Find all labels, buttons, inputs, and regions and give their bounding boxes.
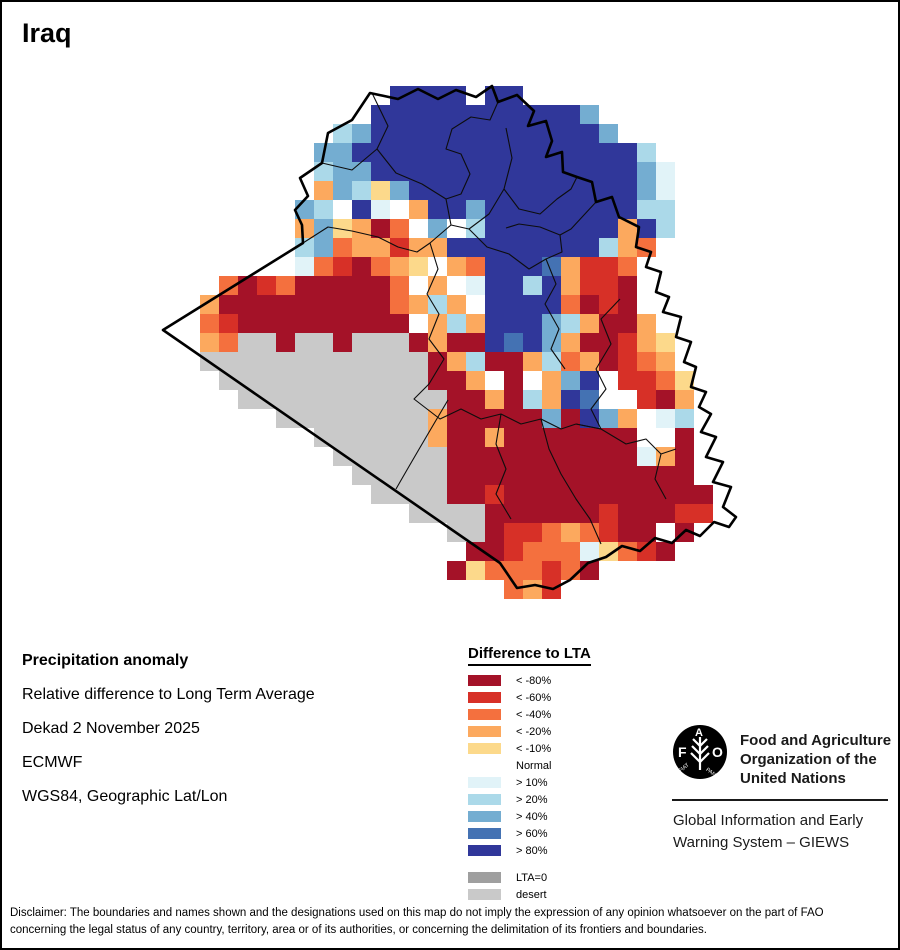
grid-cell [561, 409, 580, 428]
grid-cell [333, 181, 352, 200]
legend-swatch [468, 811, 501, 822]
grid-cell [447, 409, 466, 428]
grid-cell [314, 295, 333, 314]
fao-letter-o: O [712, 744, 723, 760]
grid-cell [485, 200, 504, 219]
grid-cell [428, 124, 447, 143]
grid-cell [352, 371, 371, 390]
grid-cell [637, 181, 656, 200]
grid-cell [314, 238, 333, 257]
grid-cell [466, 352, 485, 371]
grid-cell [637, 428, 656, 447]
grid-cell [656, 333, 675, 352]
grid-cell [637, 352, 656, 371]
grid-cell [580, 466, 599, 485]
grid-cell [694, 485, 713, 504]
grid-cell [580, 485, 599, 504]
grid-cell [276, 276, 295, 295]
legend-item: < -10% [468, 740, 638, 757]
legend-swatch [468, 709, 501, 720]
grid-cell [504, 105, 523, 124]
grid-cell [390, 162, 409, 181]
legend-label: > 80% [516, 845, 548, 857]
legend-item: > 40% [468, 808, 638, 825]
grid-cell [447, 276, 466, 295]
grid-cell [675, 466, 694, 485]
grid-cell [637, 466, 656, 485]
grid-cell [447, 466, 466, 485]
grid-cell [523, 428, 542, 447]
grid-cell [466, 390, 485, 409]
grid-cell [409, 409, 428, 428]
grid-cell [409, 390, 428, 409]
grid-cell [257, 295, 276, 314]
grid-cell [504, 276, 523, 295]
grid-cell [352, 276, 371, 295]
grid-cell [371, 409, 390, 428]
grid-cell [504, 181, 523, 200]
grid-cell [409, 352, 428, 371]
grid-cell [618, 409, 637, 428]
grid-cell [618, 523, 637, 542]
info-relative-difference: Relative difference to Long Term Average [22, 686, 315, 704]
grid-cell [409, 333, 428, 352]
grid-cell [314, 257, 333, 276]
grid-cell [295, 257, 314, 276]
grid-cell [523, 181, 542, 200]
grid-cell [466, 466, 485, 485]
grid-cell [333, 333, 352, 352]
fao-letter-a: A [695, 727, 703, 739]
grid-cell [333, 276, 352, 295]
grid-cell [447, 105, 466, 124]
grid-cell [466, 447, 485, 466]
legend-items: < -80%< -60%< -40%< -20%< -10%Normal> 10… [468, 672, 638, 859]
grid-cell [561, 428, 580, 447]
grid-cell [561, 181, 580, 200]
grid-cell [523, 466, 542, 485]
grid-cell [504, 333, 523, 352]
grid-cell [390, 371, 409, 390]
grid-cell [295, 352, 314, 371]
grid-cell [390, 181, 409, 200]
grid-cell [333, 162, 352, 181]
grid-cell [409, 257, 428, 276]
grid-cell [447, 162, 466, 181]
grid-cell [314, 200, 333, 219]
grid-cell [523, 542, 542, 561]
grid-cell [390, 105, 409, 124]
legend-swatch [468, 828, 501, 839]
grid-cell [371, 295, 390, 314]
giews-line1: Global Information and Early [673, 810, 863, 832]
grid-cell [675, 504, 694, 523]
grid-cell [542, 352, 561, 371]
grid-cell [333, 200, 352, 219]
grid-cell [561, 390, 580, 409]
grid-cell [409, 276, 428, 295]
grid-cell [295, 219, 314, 238]
grid-cell [523, 276, 542, 295]
grid-cell [542, 390, 561, 409]
grid-cell [371, 276, 390, 295]
grid-cell [428, 485, 447, 504]
grid-cell [428, 105, 447, 124]
grid-cell [276, 295, 295, 314]
grid-cell [428, 181, 447, 200]
raster-grid [181, 86, 713, 599]
grid-cell [371, 314, 390, 333]
legend-item: LTA=0 [468, 869, 638, 886]
giews-text: Global Information and Early Warning Sys… [673, 810, 863, 854]
grid-cell [238, 295, 257, 314]
grid-cell [485, 371, 504, 390]
grid-cell [523, 504, 542, 523]
legend-item: > 10% [468, 774, 638, 791]
grid-cell [428, 447, 447, 466]
grid-cell [485, 485, 504, 504]
legend-swatch [468, 777, 501, 788]
legend-item: > 20% [468, 791, 638, 808]
grid-cell [485, 181, 504, 200]
grid-cell [219, 295, 238, 314]
grid-cell [352, 295, 371, 314]
grid-cell [580, 542, 599, 561]
grid-cell [352, 428, 371, 447]
grid-cell [333, 371, 352, 390]
grid-cell [409, 238, 428, 257]
grid-cell [447, 485, 466, 504]
legend-label: Normal [516, 760, 551, 772]
grid-cell [580, 333, 599, 352]
grid-cell [561, 561, 580, 580]
grid-cell [371, 105, 390, 124]
grid-cell [599, 124, 618, 143]
grid-cell [656, 504, 675, 523]
grid-cell [447, 447, 466, 466]
legend-item: > 60% [468, 825, 638, 842]
grid-cell [371, 352, 390, 371]
grid-cell [561, 257, 580, 276]
grid-cell [352, 257, 371, 276]
grid-cell [295, 409, 314, 428]
grid-cell [409, 219, 428, 238]
grid-cell [637, 390, 656, 409]
grid-cell [656, 409, 675, 428]
grid-cell [295, 276, 314, 295]
grid-cell [599, 314, 618, 333]
grid-cell [618, 371, 637, 390]
grid-cell [523, 162, 542, 181]
grid-cell [637, 200, 656, 219]
grid-cell [466, 428, 485, 447]
grid-cell [523, 295, 542, 314]
grid-cell [485, 314, 504, 333]
grid-cell [523, 390, 542, 409]
info-precipitation-anomaly: Precipitation anomaly [22, 652, 315, 670]
grid-cell [409, 143, 428, 162]
grid-cell [352, 143, 371, 162]
grid-cell [466, 371, 485, 390]
grid-cell [390, 333, 409, 352]
legend-item: < -80% [468, 672, 638, 689]
grid-cell [504, 352, 523, 371]
grid-cell [542, 561, 561, 580]
grid-cell [580, 143, 599, 162]
grid-cell [466, 143, 485, 162]
map-info-block: Precipitation anomaly Relative differenc… [22, 652, 315, 822]
grid-cell [466, 105, 485, 124]
grid-cell [504, 428, 523, 447]
legend-label: < -10% [516, 743, 551, 755]
grid-cell [542, 409, 561, 428]
giews-line2: Warning System – GIEWS [673, 832, 863, 854]
fao-org-name: Food and Agriculture Organization of the… [740, 731, 891, 788]
grid-cell [447, 333, 466, 352]
grid-cell [637, 485, 656, 504]
grid-cell [295, 371, 314, 390]
grid-cell [542, 428, 561, 447]
grid-cell [504, 143, 523, 162]
grid-cell [656, 371, 675, 390]
grid-cell [599, 219, 618, 238]
grid-cell [618, 466, 637, 485]
grid-cell [428, 428, 447, 447]
grid-cell [561, 523, 580, 542]
grid-cell [656, 390, 675, 409]
grid-cell [257, 352, 276, 371]
grid-cell [352, 200, 371, 219]
grid-cell [219, 352, 238, 371]
grid-cell [447, 124, 466, 143]
grid-cell [561, 238, 580, 257]
legend-label: > 10% [516, 777, 548, 789]
grid-cell [523, 523, 542, 542]
grid-cell [485, 390, 504, 409]
grid-cell [637, 447, 656, 466]
grid-cell [390, 143, 409, 162]
grid-cell [390, 352, 409, 371]
grid-cell [276, 333, 295, 352]
grid-cell [580, 371, 599, 390]
grid-cell [637, 371, 656, 390]
grid-cell [523, 447, 542, 466]
grid-cell [618, 447, 637, 466]
grid-cell [390, 124, 409, 143]
grid-cell [428, 219, 447, 238]
legend-item: < -60% [468, 689, 638, 706]
grid-cell [504, 523, 523, 542]
grid-cell [466, 181, 485, 200]
grid-cell [219, 314, 238, 333]
grid-cell [295, 295, 314, 314]
grid-cell [428, 143, 447, 162]
grid-cell [295, 390, 314, 409]
legend-swatch [468, 743, 501, 754]
grid-cell [504, 219, 523, 238]
grid-cell [352, 333, 371, 352]
legend-label: desert [516, 889, 547, 901]
map-page: Iraq Precipitation anomaly Relative diff… [0, 0, 900, 950]
grid-cell [409, 181, 428, 200]
grid-cell [333, 124, 352, 143]
grid-cell [618, 390, 637, 409]
grid-cell [599, 143, 618, 162]
grid-cell [599, 447, 618, 466]
grid-cell [656, 466, 675, 485]
grid-cell [390, 219, 409, 238]
grid-cell [561, 314, 580, 333]
fao-letter-f: F [678, 744, 687, 760]
grid-cell [485, 124, 504, 143]
grid-cell [561, 276, 580, 295]
grid-cell [580, 314, 599, 333]
grid-cell [618, 143, 637, 162]
grid-cell [333, 238, 352, 257]
grid-cell [314, 371, 333, 390]
grid-cell [580, 238, 599, 257]
grid-cell [694, 504, 713, 523]
grid-cell [618, 162, 637, 181]
grid-cell [352, 181, 371, 200]
grid-cell [599, 466, 618, 485]
grid-cell [637, 333, 656, 352]
grid-cell [371, 162, 390, 181]
legend-swatch [468, 726, 501, 737]
grid-cell [428, 466, 447, 485]
grid-cell [618, 276, 637, 295]
grid-cell [637, 314, 656, 333]
legend-label: < -20% [516, 726, 551, 738]
legend-label: > 60% [516, 828, 548, 840]
grid-cell [618, 200, 637, 219]
grid-cell [599, 504, 618, 523]
legend-item: < -20% [468, 723, 638, 740]
grid-cell [314, 314, 333, 333]
grid-cell [447, 390, 466, 409]
grid-cell [276, 390, 295, 409]
grid-cell [542, 542, 561, 561]
grid-cell [656, 162, 675, 181]
grid-cell [333, 390, 352, 409]
grid-cell [637, 162, 656, 181]
grid-cell [485, 523, 504, 542]
grid-cell [276, 314, 295, 333]
grid-cell [504, 447, 523, 466]
grid-cell [409, 124, 428, 143]
grid-cell [409, 428, 428, 447]
grid-cell [447, 504, 466, 523]
grid-cell [542, 181, 561, 200]
grid-cell [371, 371, 390, 390]
grid-cell [485, 143, 504, 162]
grid-cell [333, 295, 352, 314]
grid-cell [466, 314, 485, 333]
iraq-precipitation-map [0, 0, 900, 625]
grid-cell [295, 314, 314, 333]
grid-cell [371, 333, 390, 352]
grid-cell [523, 371, 542, 390]
grid-cell [637, 504, 656, 523]
grid-cell [599, 162, 618, 181]
info-source: ECMWF [22, 754, 315, 772]
grid-cell [409, 314, 428, 333]
grid-cell [504, 485, 523, 504]
info-projection: WGS84, Geographic Lat/Lon [22, 788, 315, 806]
grid-cell [504, 314, 523, 333]
grid-cell [523, 352, 542, 371]
grid-cell [561, 371, 580, 390]
grid-cell [504, 238, 523, 257]
grid-cell [618, 333, 637, 352]
grid-cell [314, 409, 333, 428]
grid-cell [200, 314, 219, 333]
grid-cell [599, 352, 618, 371]
grid-cell [637, 409, 656, 428]
grid-cell [561, 466, 580, 485]
info-dekad: Dekad 2 November 2025 [22, 720, 315, 738]
legend-label: < -80% [516, 675, 551, 687]
grid-cell [314, 352, 333, 371]
grid-cell [485, 504, 504, 523]
grid-cell [504, 561, 523, 580]
grid-cell [333, 257, 352, 276]
grid-cell [485, 352, 504, 371]
grid-cell [523, 409, 542, 428]
grid-cell [257, 333, 276, 352]
grid-cell [599, 257, 618, 276]
legend-item: desert [468, 886, 638, 903]
grid-cell [523, 333, 542, 352]
grid-cell [428, 200, 447, 219]
grid-cell [656, 542, 675, 561]
grid-cell [276, 352, 295, 371]
legend-swatch [468, 692, 501, 703]
grid-cell [618, 485, 637, 504]
grid-cell [504, 466, 523, 485]
grid-cell [219, 333, 238, 352]
legend-label: LTA=0 [516, 872, 547, 884]
grid-cell [675, 390, 694, 409]
fao-org-line2: Organization of the [740, 750, 891, 769]
grid-cell [523, 238, 542, 257]
grid-cell [675, 485, 694, 504]
grid-cell [580, 504, 599, 523]
grid-cell [618, 542, 637, 561]
grid-cell [390, 447, 409, 466]
grid-cell [466, 276, 485, 295]
grid-cell [371, 390, 390, 409]
grid-cell [314, 333, 333, 352]
grid-cell [371, 143, 390, 162]
grid-cell [542, 371, 561, 390]
grid-cell [523, 314, 542, 333]
grid-cell [561, 504, 580, 523]
grid-cell [447, 238, 466, 257]
grid-cell [504, 371, 523, 390]
legend-extra-items: LTA=0desert [468, 869, 638, 903]
grid-cell [333, 409, 352, 428]
grid-cell [466, 523, 485, 542]
grid-cell [618, 181, 637, 200]
grid-cell [409, 200, 428, 219]
disclaimer-line1: Disclaimer: The boundaries and names sho… [10, 905, 890, 922]
grid-cell [542, 504, 561, 523]
grid-cell [371, 200, 390, 219]
grid-cell [257, 314, 276, 333]
grid-cell [466, 238, 485, 257]
fao-logo: F A O FIAT PANIS [672, 724, 728, 780]
